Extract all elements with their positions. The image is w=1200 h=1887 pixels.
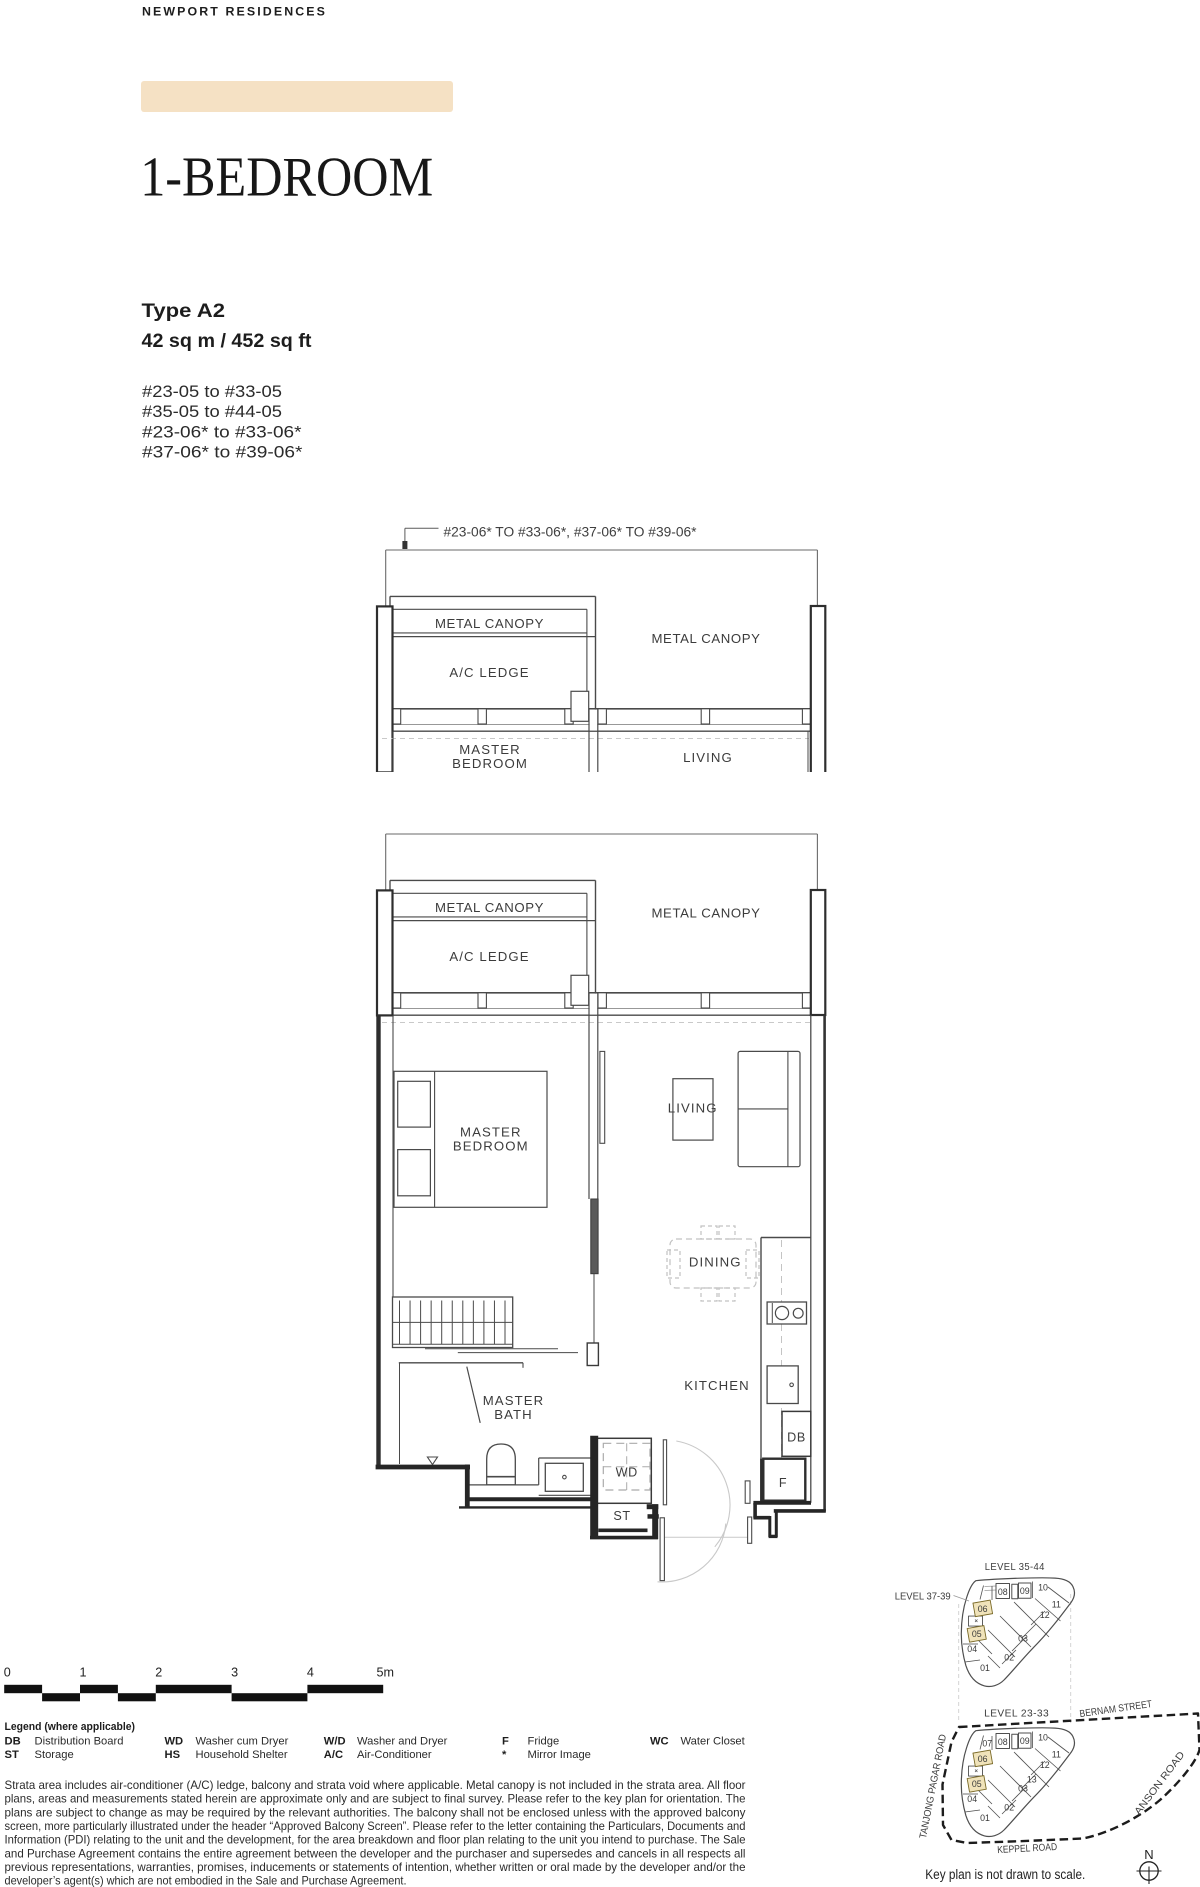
svg-text:METAL CANOPY: METAL CANOPY (651, 906, 760, 921)
svg-text:01: 01 (980, 1813, 990, 1823)
svg-text:Strata area includes air-condi: Strata area includes air-conditioner (A/… (5, 1778, 746, 1792)
svg-text:A/C LEDGE: A/C LEDGE (449, 949, 529, 964)
svg-text:N: N (1144, 1847, 1153, 1862)
svg-text:02: 02 (1004, 1653, 1014, 1663)
svg-text:Mirror Image: Mirror Image (528, 1749, 591, 1761)
svg-text:#23-05 to #33-05: #23-05 to #33-05 (142, 382, 282, 401)
svg-text:BATH: BATH (494, 1407, 533, 1422)
svg-text:Fridge: Fridge (528, 1735, 560, 1747)
svg-text:10: 10 (1038, 1583, 1048, 1593)
svg-text:05: 05 (972, 1629, 982, 1639)
svg-text:ANSON ROAD: ANSON ROAD (1133, 1750, 1188, 1817)
svg-text:Storage: Storage (35, 1749, 74, 1761)
svg-text:WD: WD (616, 1466, 638, 1480)
svg-text:3: 3 (231, 1666, 238, 1680)
svg-text:1-BEDROOM: 1-BEDROOM (140, 147, 433, 209)
svg-text:DB: DB (787, 1431, 806, 1445)
svg-text:BEDROOM: BEDROOM (452, 756, 528, 771)
svg-text:F: F (502, 1735, 509, 1747)
svg-text:Distribution Board: Distribution Board (35, 1735, 124, 1747)
svg-text:09: 09 (1020, 1586, 1030, 1596)
svg-text:Washer cum Dryer: Washer cum Dryer (196, 1735, 289, 1747)
svg-text:LIVING: LIVING (668, 1100, 718, 1115)
svg-text:F: F (779, 1476, 787, 1490)
svg-text:previous representations, warr: previous representations, warranties, pr… (5, 1860, 746, 1874)
svg-text:4: 4 (307, 1666, 314, 1680)
svg-text:07: 07 (982, 1739, 992, 1749)
svg-text:02: 02 (1004, 1803, 1014, 1813)
svg-text:08: 08 (998, 1737, 1008, 1747)
svg-text:MASTER: MASTER (483, 1393, 545, 1408)
svg-text:A/C LEDGE: A/C LEDGE (449, 665, 529, 680)
svg-text:1: 1 (79, 1666, 86, 1680)
svg-text:plans, areas and measurements: plans, areas and measurements stated her… (5, 1792, 746, 1806)
svg-text:#35-05 to #44-05: #35-05 to #44-05 (142, 402, 282, 421)
svg-text:METAL CANOPY: METAL CANOPY (435, 616, 544, 631)
svg-text:MASTER: MASTER (460, 1125, 522, 1140)
svg-text:and Purchase Agreement contain: and Purchase Agreement contains the enti… (5, 1846, 746, 1860)
svg-text:LEVEL 35-44: LEVEL 35-44 (985, 1562, 1045, 1573)
svg-text:DB: DB (5, 1735, 21, 1747)
svg-text:06: 06 (978, 1754, 988, 1764)
svg-text:Air-Conditioner: Air-Conditioner (357, 1749, 432, 1761)
svg-text:LEVEL 23-33: LEVEL 23-33 (984, 1709, 1049, 1720)
svg-text:11: 11 (1052, 1600, 1061, 1610)
svg-text:5m: 5m (376, 1666, 394, 1680)
svg-text:11: 11 (1052, 1750, 1061, 1760)
svg-text:04: 04 (967, 1794, 977, 1804)
svg-text:0: 0 (4, 1666, 11, 1680)
svg-text:2: 2 (155, 1666, 162, 1680)
svg-text:12: 12 (1040, 1610, 1050, 1620)
svg-text:Household Shelter: Household Shelter (196, 1749, 288, 1761)
svg-text:plans are subject to change as: plans are subject to change as may be re… (5, 1805, 746, 1819)
svg-text:DINING: DINING (689, 1255, 742, 1270)
svg-text:NEWPORT RESIDENCES: NEWPORT RESIDENCES (142, 5, 327, 19)
svg-text:Type A2: Type A2 (142, 300, 226, 322)
svg-text:TANJONG PAGAR ROAD: TANJONG PAGAR ROAD (918, 1733, 949, 1839)
svg-text:A/C: A/C (324, 1749, 343, 1761)
svg-text:WD: WD (165, 1735, 184, 1747)
svg-text:08: 08 (998, 1587, 1008, 1597)
svg-text:METAL CANOPY: METAL CANOPY (651, 631, 760, 646)
svg-text:12: 12 (1040, 1760, 1050, 1770)
svg-text:#37-06* to #39-06*: #37-06* to #39-06* (142, 443, 303, 462)
svg-text:ST: ST (5, 1749, 19, 1761)
svg-text:MASTER: MASTER (459, 742, 521, 757)
svg-text:#23-06* TO #33-06*, #37-06* TO: #23-06* TO #33-06*, #37-06* TO #39-06* (444, 525, 697, 541)
svg-text:W/D: W/D (324, 1735, 346, 1747)
svg-text:Legend (where applicable): Legend (where applicable) (5, 1721, 136, 1733)
svg-text:03: 03 (1018, 1634, 1028, 1644)
svg-text:*: * (502, 1749, 507, 1761)
svg-text:KITCHEN: KITCHEN (684, 1378, 750, 1393)
svg-text:10: 10 (1038, 1733, 1048, 1743)
svg-text:05: 05 (972, 1779, 982, 1789)
svg-text:LEVEL 37-39: LEVEL 37-39 (895, 1592, 951, 1603)
svg-text:Water Closet: Water Closet (681, 1735, 746, 1747)
svg-text:Washer and Dryer: Washer and Dryer (357, 1735, 448, 1747)
svg-text:KEPPEL ROAD: KEPPEL ROAD (997, 1842, 1057, 1856)
svg-text:screen, more particularly illu: screen, more particularly illustrated un… (5, 1819, 746, 1833)
svg-text:42 sq m / 452 sq ft: 42 sq m / 452 sq ft (142, 330, 312, 352)
svg-text:Information (PDI) relating to: Information (PDI) relating to the unit a… (5, 1833, 746, 1847)
svg-text:METAL CANOPY: METAL CANOPY (435, 900, 544, 915)
svg-text:01: 01 (980, 1663, 990, 1673)
svg-text:developer’s agent(s) which are: developer’s agent(s) which are not embod… (5, 1874, 407, 1887)
svg-text:06: 06 (978, 1604, 988, 1614)
svg-text:04: 04 (967, 1644, 977, 1654)
svg-text:WC: WC (650, 1735, 669, 1747)
svg-text:BEDROOM: BEDROOM (453, 1138, 529, 1153)
svg-text:09: 09 (1020, 1736, 1030, 1746)
svg-text:13: 13 (1027, 1774, 1037, 1784)
svg-text:03: 03 (1018, 1784, 1028, 1794)
svg-text:Key plan is not drawn to scale: Key plan is not drawn to scale. (925, 1867, 1085, 1882)
svg-text:#23-06* to #33-06*: #23-06* to #33-06* (142, 422, 302, 441)
svg-text:HS: HS (165, 1749, 181, 1761)
svg-text:ST: ST (613, 1509, 630, 1523)
svg-text:LIVING: LIVING (683, 750, 733, 765)
